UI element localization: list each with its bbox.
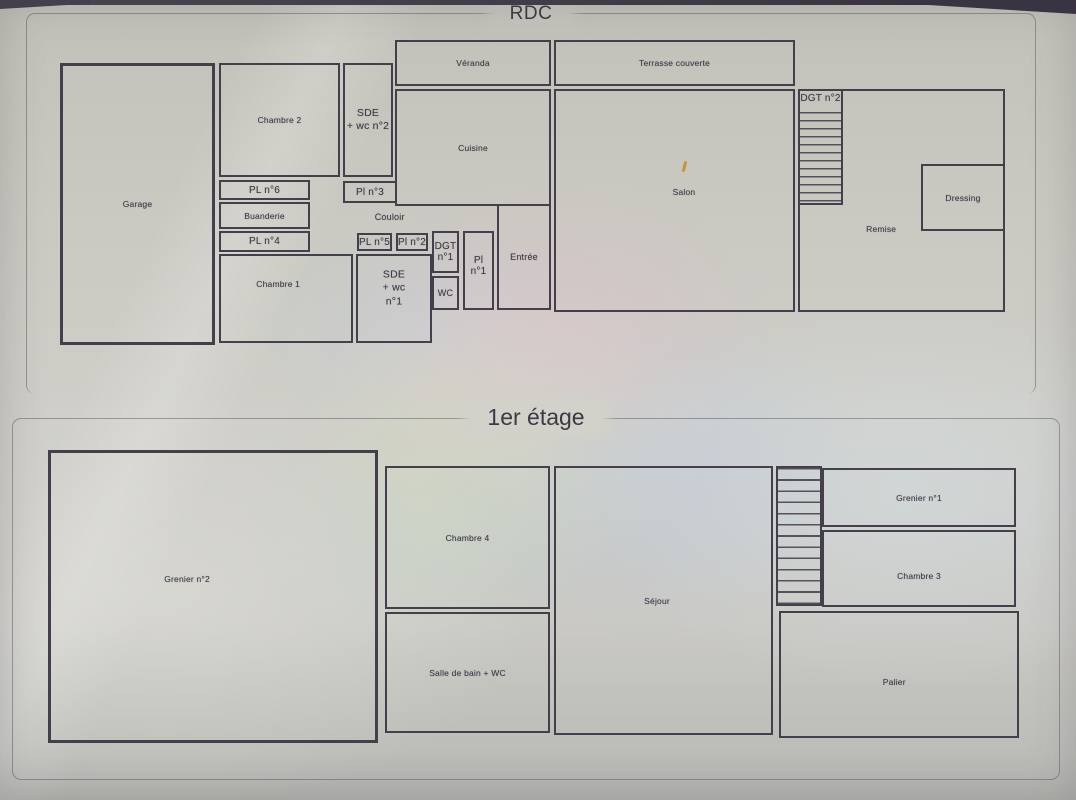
room-stairs1 [776,466,822,606]
room-chambre4: Chambre 4 [385,466,550,609]
room-sdb: Salle de bain + WC [385,612,550,733]
room-label-sejour: Séjour [644,596,670,606]
room-label-sdb: Salle de bain + WC [429,668,506,678]
room-label-grenier2: Grenier n°2 [164,574,210,584]
room-palier: Palier [779,611,1019,738]
room-label-grenier1: Grenier n°1 [896,493,942,503]
room-label-chambre3: Chambre 3 [897,571,941,581]
floor-plan-photo: RDC 1er étage GarageChambre 2SDE + wc n°… [0,0,1076,800]
room-label-chambre4: Chambre 4 [446,533,490,543]
plan-etage1: Grenier n°2Chambre 4Salle de bain + WCSé… [0,0,1076,800]
room-label-palier: Palier [883,677,906,687]
screen-bezel-edge [0,0,1076,5]
stairs-icon [778,468,820,604]
room-chambre3: Chambre 3 [822,530,1016,607]
room-grenier2: Grenier n°2 [48,450,378,743]
room-grenier1: Grenier n°1 [822,468,1016,527]
room-sejour: Séjour [554,466,773,735]
